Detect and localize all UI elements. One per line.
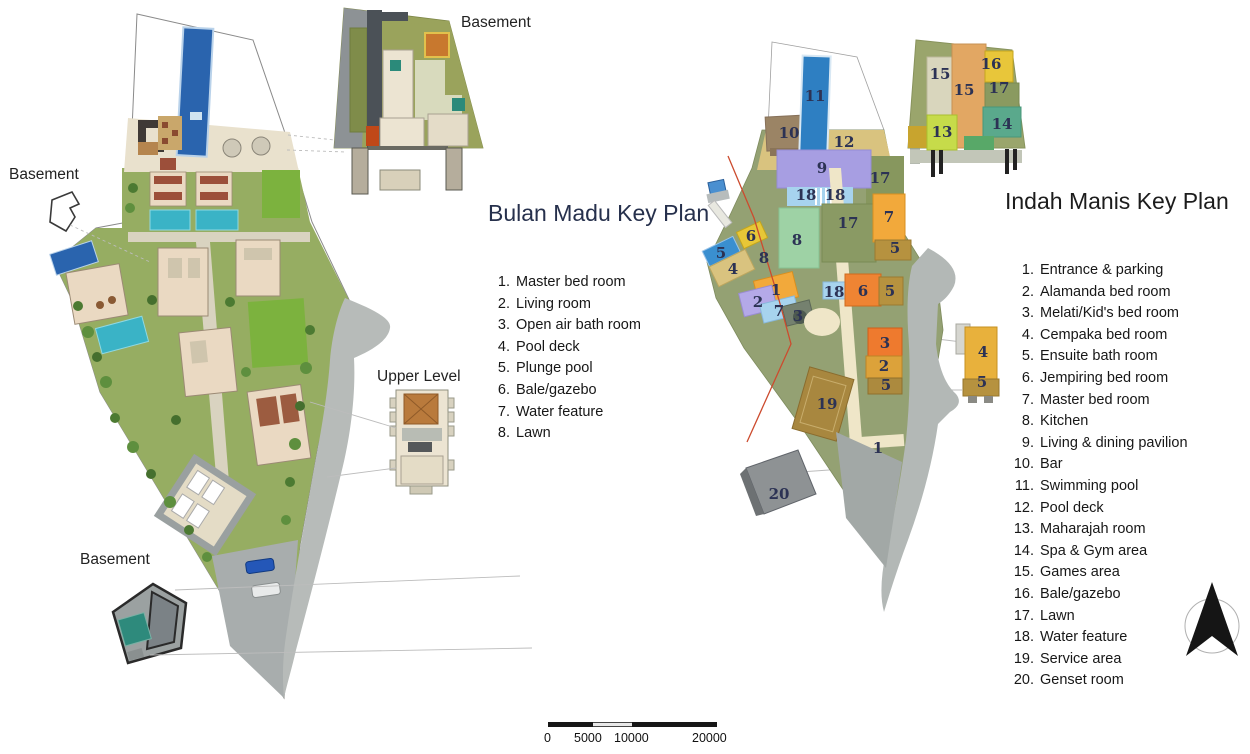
bulan-madu-title: Bulan Madu Key Plan	[488, 200, 709, 227]
legend-item-label: Spa & Gym area	[1040, 541, 1147, 563]
legend-item-label: Plunge pool	[516, 358, 593, 380]
legend-item: 6. Jempiring bed room	[1008, 368, 1188, 390]
legend-item: 2. Alamanda bed room	[1008, 282, 1188, 304]
legend-item-number: 6.	[1008, 368, 1034, 390]
legend-item-number: 2.	[494, 294, 510, 316]
legend-item: 17. Lawn	[1008, 606, 1188, 628]
legend-item-number: 10.	[1008, 454, 1034, 476]
indah-upper-level-inset	[908, 40, 1025, 177]
legend-item-label: Water feature	[1040, 627, 1127, 649]
legend-item: 2. Living room	[494, 294, 641, 316]
scale-bar: 0 5000 10000 20000	[548, 720, 718, 746]
legend-item-label: Alamanda bed room	[1040, 282, 1171, 304]
legend-item-number: 12.	[1008, 498, 1034, 520]
legend-item-label: Bale/gazebo	[516, 380, 597, 402]
indah-manis-title: Indah Manis Key Plan	[1005, 188, 1229, 215]
legend-item-label: Lawn	[1040, 606, 1075, 628]
legend-item-label: Lawn	[516, 423, 551, 445]
legend-item-label: Pool deck	[1040, 498, 1104, 520]
legend-item-number: 1.	[494, 272, 510, 294]
legend-item: 3. Open air bath room	[494, 315, 641, 337]
legend-item: 12. Pool deck	[1008, 498, 1188, 520]
legend-item-label: Water feature	[516, 402, 603, 424]
indah-side-inset	[956, 324, 999, 403]
legend-item-number: 3.	[494, 315, 510, 337]
legend-item-number: 15.	[1008, 562, 1034, 584]
legend-item-label: Service area	[1040, 649, 1121, 671]
legend-item-number: 11.	[1008, 476, 1034, 498]
legend-item-number: 5.	[1008, 346, 1034, 368]
indah-manis-legend: 1. Entrance & parking 2. Alamanda bed ro…	[1008, 260, 1188, 692]
legend-item: 7. Master bed room	[1008, 390, 1188, 412]
legend-item-number: 3.	[1008, 303, 1034, 325]
scale-tick: 20000	[692, 731, 727, 745]
legend-item-number: 7.	[1008, 390, 1034, 412]
scale-tick: 10000	[614, 731, 649, 745]
legend-item-number: 4.	[1008, 325, 1034, 347]
scale-tick: 0	[544, 731, 551, 745]
legend-item: 16. Bale/gazebo	[1008, 584, 1188, 606]
legend-item-label: Master bed room	[516, 272, 626, 294]
legend-item: 8. Kitchen	[1008, 411, 1188, 433]
legend-item: 11. Swimming pool	[1008, 476, 1188, 498]
legend-item: 7. Water feature	[494, 402, 641, 424]
legend-item-label: Ensuite bath room	[1040, 346, 1158, 368]
basement-key-outline	[50, 192, 79, 231]
legend-item: 1. Master bed room	[494, 272, 641, 294]
legend-item-label: Living room	[516, 294, 591, 316]
legend-item: 15. Games area	[1008, 562, 1188, 584]
basement-label-bottom: Basement	[80, 551, 150, 569]
legend-item-label: Kitchen	[1040, 411, 1088, 433]
legend-item-number: 5.	[494, 358, 510, 380]
legend-item: 6. Bale/gazebo	[494, 380, 641, 402]
legend-item-label: Swimming pool	[1040, 476, 1138, 498]
legend-item-label: Jempiring bed room	[1040, 368, 1168, 390]
legend-item-number: 2.	[1008, 282, 1034, 304]
legend-item: 4. Pool deck	[494, 337, 641, 359]
legend-item-label: Entrance & parking	[1040, 260, 1163, 282]
bulan-upper-level-inset	[390, 390, 454, 494]
legend-item: 9. Living & dining pavilion	[1008, 433, 1188, 455]
legend-item-label: Games area	[1040, 562, 1120, 584]
legend-item-number: 20.	[1008, 670, 1034, 692]
legend-item-label: Melati/Kid's bed room	[1040, 303, 1179, 325]
legend-item-label: Cempaka bed room	[1040, 325, 1167, 347]
legend-item-number: 8.	[494, 423, 510, 445]
legend-item-label: Genset room	[1040, 670, 1124, 692]
legend-item-number: 17.	[1008, 606, 1034, 628]
legend-item: 13. Maharajah room	[1008, 519, 1188, 541]
legend-item-label: Maharajah room	[1040, 519, 1146, 541]
legend-item-number: 4.	[494, 337, 510, 359]
legend-item-number: 18.	[1008, 627, 1034, 649]
legend-item-number: 6.	[494, 380, 510, 402]
legend-item: 4. Cempaka bed room	[1008, 325, 1188, 347]
basement-label-left: Basement	[9, 166, 79, 184]
legend-item-number: 16.	[1008, 584, 1034, 606]
scale-tick: 5000	[574, 731, 602, 745]
bulan-madu-legend: 1. Master bed room 2. Living room 3. Ope…	[494, 272, 641, 445]
legend-item-label: Open air bath room	[516, 315, 641, 337]
legend-item: 19. Service area	[1008, 649, 1188, 671]
legend-item-number: 14.	[1008, 541, 1034, 563]
legend-item-number: 13.	[1008, 519, 1034, 541]
legend-item-label: Bale/gazebo	[1040, 584, 1121, 606]
key-plan-page: Bulan Madu Key Plan Indah Manis Key Plan…	[0, 0, 1250, 754]
legend-item: 3. Melati/Kid's bed room	[1008, 303, 1188, 325]
legend-item: 8. Lawn	[494, 423, 641, 445]
legend-item: 14. Spa & Gym area	[1008, 541, 1188, 563]
legend-item: 20. Genset room	[1008, 670, 1188, 692]
north-arrow-icon	[1185, 582, 1239, 656]
legend-item: 10. Bar	[1008, 454, 1188, 476]
legend-item-number: 1.	[1008, 260, 1034, 282]
legend-item-number: 8.	[1008, 411, 1034, 433]
legend-item: 5. Ensuite bath room	[1008, 346, 1188, 368]
legend-item-number: 19.	[1008, 649, 1034, 671]
legend-item-label: Pool deck	[516, 337, 580, 359]
basement-label-top: Basement	[461, 14, 531, 32]
upper-level-label: Upper Level	[377, 368, 461, 386]
legend-item: 1. Entrance & parking	[1008, 260, 1188, 282]
legend-item: 5. Plunge pool	[494, 358, 641, 380]
scale-bar-segments	[548, 722, 717, 727]
legend-item-number: 9.	[1008, 433, 1034, 455]
bulan-basement-bottom-inset	[113, 584, 186, 663]
bulan-basement-inset	[334, 8, 483, 194]
legend-item-label: Master bed room	[1040, 390, 1150, 412]
legend-item-number: 7.	[494, 402, 510, 424]
legend-item-label: Living & dining pavilion	[1040, 433, 1188, 455]
legend-item-label: Bar	[1040, 454, 1063, 476]
legend-item: 18. Water feature	[1008, 627, 1188, 649]
